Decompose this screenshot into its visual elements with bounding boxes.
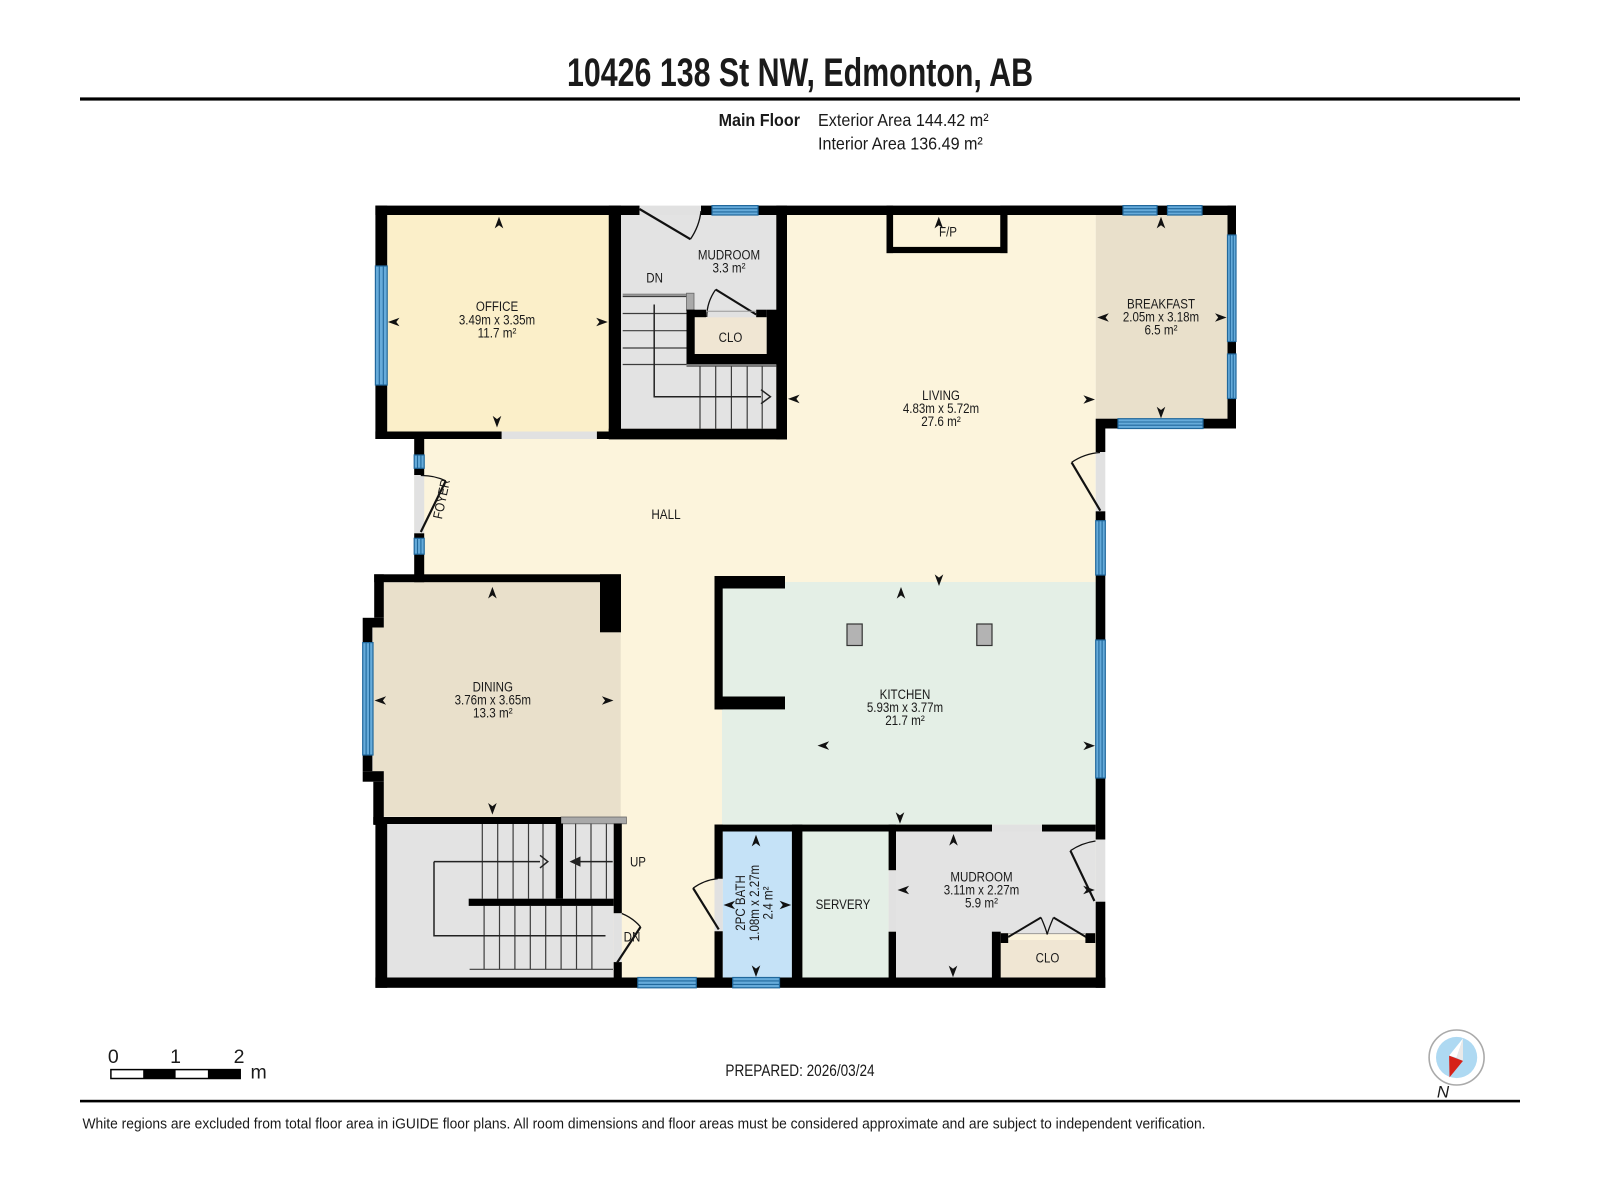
svg-text:10426 138 St NW, Edmonton, AB: 10426 138 St NW, Edmonton, AB [567,51,1033,95]
svg-text:3.3 m²: 3.3 m² [712,261,746,276]
svg-text:Main Floor: Main Floor [719,110,801,130]
svg-text:CLO: CLO [719,330,743,345]
svg-text:White regions are excluded fro: White regions are excluded from total fl… [83,1116,1206,1133]
svg-text:DN: DN [646,271,663,286]
svg-text:HALL: HALL [651,507,681,522]
svg-text:m: m [251,1062,267,1084]
svg-text:2PC BATH: 2PC BATH [733,875,748,931]
svg-text:1: 1 [170,1046,181,1068]
svg-text:5.9 m²: 5.9 m² [965,896,999,911]
svg-text:Interior Area 136.49 m²: Interior Area 136.49 m² [818,133,983,153]
svg-text:PREPARED: 2026/03/24: PREPARED: 2026/03/24 [725,1062,874,1080]
svg-text:0: 0 [108,1046,119,1068]
svg-text:N: N [1437,1083,1450,1102]
svg-text:11.7 m²: 11.7 m² [478,326,517,341]
svg-text:27.6 m²: 27.6 m² [921,414,961,429]
svg-text:CLO: CLO [1036,951,1060,966]
svg-text:6.5 m²: 6.5 m² [1144,323,1178,338]
svg-text:13.3 m²: 13.3 m² [473,706,513,721]
svg-text:2.4 m²: 2.4 m² [761,886,776,920]
svg-text:Exterior Area 144.42 m²: Exterior Area 144.42 m² [818,110,989,130]
svg-text:F/P: F/P [939,224,957,239]
svg-text:21.7 m²: 21.7 m² [885,713,925,728]
svg-text:SERVERY: SERVERY [816,897,871,912]
svg-text:DN: DN [624,930,641,945]
svg-text:2: 2 [234,1046,245,1068]
svg-text:UP: UP [630,855,646,870]
